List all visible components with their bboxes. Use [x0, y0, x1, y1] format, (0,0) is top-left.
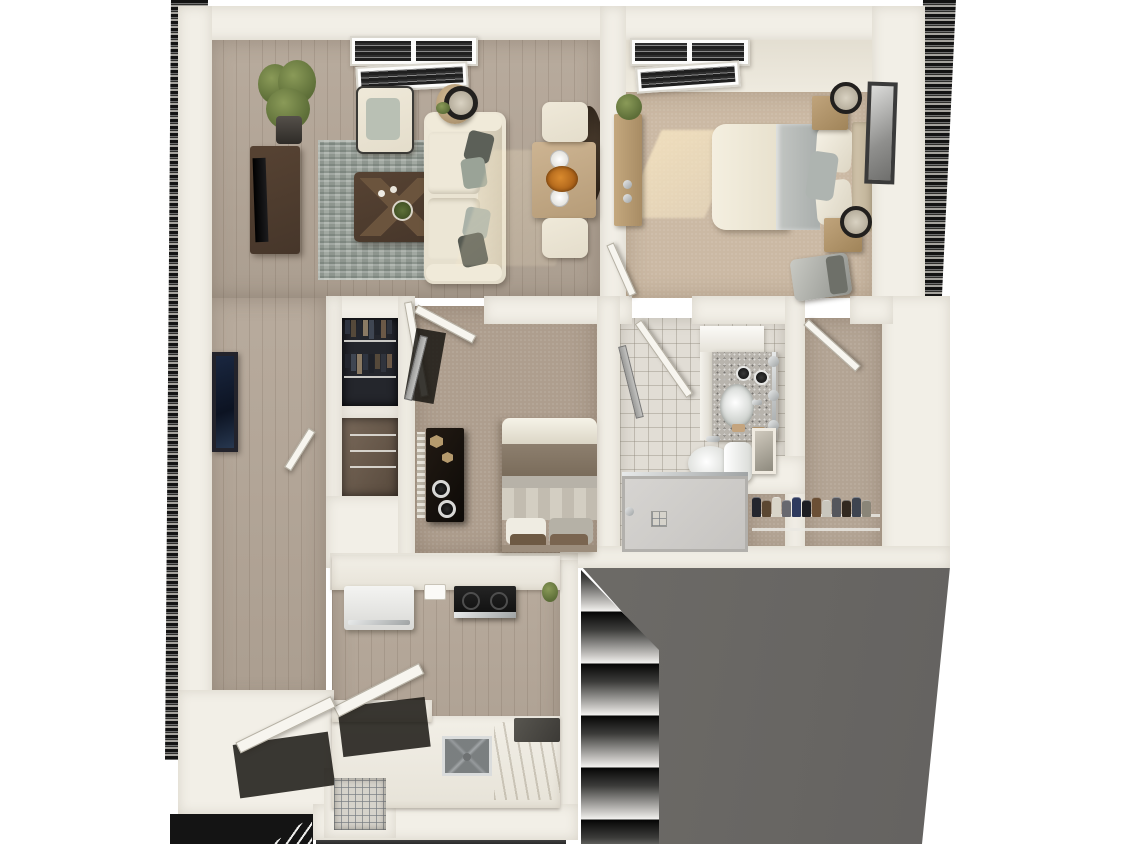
hanging-garment — [381, 320, 386, 338]
shoe — [862, 500, 871, 517]
hanging-garment — [375, 354, 380, 369]
armchair — [356, 86, 414, 154]
hand-towel1 — [732, 424, 745, 432]
hanging-garment — [387, 354, 392, 368]
range-cooktop — [454, 586, 516, 618]
speaker2 — [438, 500, 456, 518]
shower-glass-track — [622, 472, 748, 476]
bathroom-sink — [720, 384, 754, 428]
hanging-garment — [357, 320, 362, 340]
bed2-foot-fold — [502, 418, 597, 444]
wall-mid-c — [692, 296, 800, 324]
hallway-framed-art — [212, 352, 238, 452]
hanging-garment — [351, 320, 356, 337]
vanity-jar2 — [754, 370, 769, 385]
table-cups — [378, 190, 385, 197]
shower-drain — [651, 511, 667, 527]
wall-above-roof — [560, 546, 950, 568]
dining-chair-top — [542, 102, 588, 142]
hanging-garment — [369, 354, 374, 373]
wood-knob2 — [442, 452, 453, 463]
refrigerator — [344, 586, 414, 630]
kitchen-outlet — [424, 584, 446, 600]
floorplan-render — [0, 0, 1125, 844]
wood-knob1 — [430, 435, 443, 448]
hanging-garment — [351, 354, 356, 371]
bed2-gray-band — [502, 476, 597, 488]
window-blinds-upper — [355, 41, 411, 61]
shoe — [772, 497, 781, 517]
wall-left — [178, 6, 212, 706]
bedroom2-black-dresser — [426, 428, 464, 522]
hanging-garment — [369, 320, 374, 339]
kitchen-counter-top-run — [332, 556, 560, 590]
hall-closet2-interior — [342, 418, 398, 496]
dining-table — [532, 142, 596, 218]
kitchen-sink — [442, 736, 492, 776]
wall-kitchen-right — [560, 560, 578, 840]
table-plant — [436, 102, 450, 114]
shoe — [802, 500, 811, 517]
bed2-headboard — [502, 545, 597, 552]
tv-console — [250, 146, 300, 254]
bedroom1-bench — [789, 252, 852, 302]
shoe — [792, 497, 801, 517]
walk-in-shower — [622, 476, 748, 552]
shoe — [752, 497, 761, 517]
bedroom1-dresser — [614, 114, 642, 226]
tv — [253, 158, 269, 242]
speaker1 — [432, 480, 450, 498]
table-plant-dish — [392, 200, 413, 221]
wall-bedroom2-bathroom — [597, 296, 620, 568]
vanity-jar1 — [736, 366, 751, 381]
towel-bar — [772, 352, 776, 438]
lamp-top — [830, 82, 862, 114]
shoe — [812, 497, 821, 517]
bathroom-framed-art — [752, 428, 776, 474]
hanging-garment — [345, 320, 350, 334]
hall-closet-interior — [342, 318, 398, 406]
lamp-bottom — [840, 206, 872, 238]
wall-mid-d — [850, 296, 893, 324]
hanging-garment — [375, 320, 380, 335]
shoe — [832, 497, 841, 517]
hanging-garment — [345, 354, 350, 368]
wall-right-middle — [882, 296, 950, 568]
hanging-clothes-row1 — [345, 320, 395, 340]
floor-plant — [256, 60, 320, 146]
kitchen-plant — [542, 582, 558, 602]
shoe-row — [752, 497, 880, 517]
wall-top — [180, 6, 925, 40]
armchair-cushion — [366, 98, 400, 140]
bedroom1-dresser-plant — [616, 94, 642, 120]
wire-basket-nook — [334, 778, 386, 830]
dining-chair-bottom — [542, 218, 588, 258]
counter-dark-slab — [514, 718, 560, 742]
hanging-garment — [357, 354, 362, 374]
toilet-paper-holder — [706, 436, 720, 442]
shoe-shelf-wire2 — [752, 528, 880, 531]
shoe — [822, 500, 831, 517]
shower-head — [625, 507, 634, 516]
bed2-brown-blanket — [502, 444, 597, 476]
shoe — [842, 500, 851, 517]
bathroom-faucet — [752, 400, 762, 405]
hanging-clothes-row2 — [345, 354, 395, 376]
side-table — [436, 84, 474, 124]
hanging-garment — [381, 354, 386, 372]
hanging-garment — [387, 320, 392, 334]
bedroom2-bed — [502, 418, 597, 552]
shoe — [852, 497, 861, 517]
bed2-duvet — [502, 488, 597, 520]
shoe — [782, 500, 791, 517]
window-blinds-upper2 — [416, 41, 472, 61]
shoe — [762, 500, 771, 517]
hanging-garment — [363, 354, 368, 370]
bedroom2-vent-strip — [417, 432, 425, 518]
plant-pot — [276, 116, 302, 144]
flower-centerpiece — [546, 166, 578, 192]
table-lamp — [444, 86, 478, 120]
bedroom1-framed-art — [864, 82, 898, 185]
hanging-garment — [363, 320, 368, 336]
wall-closet-divider — [342, 404, 398, 418]
